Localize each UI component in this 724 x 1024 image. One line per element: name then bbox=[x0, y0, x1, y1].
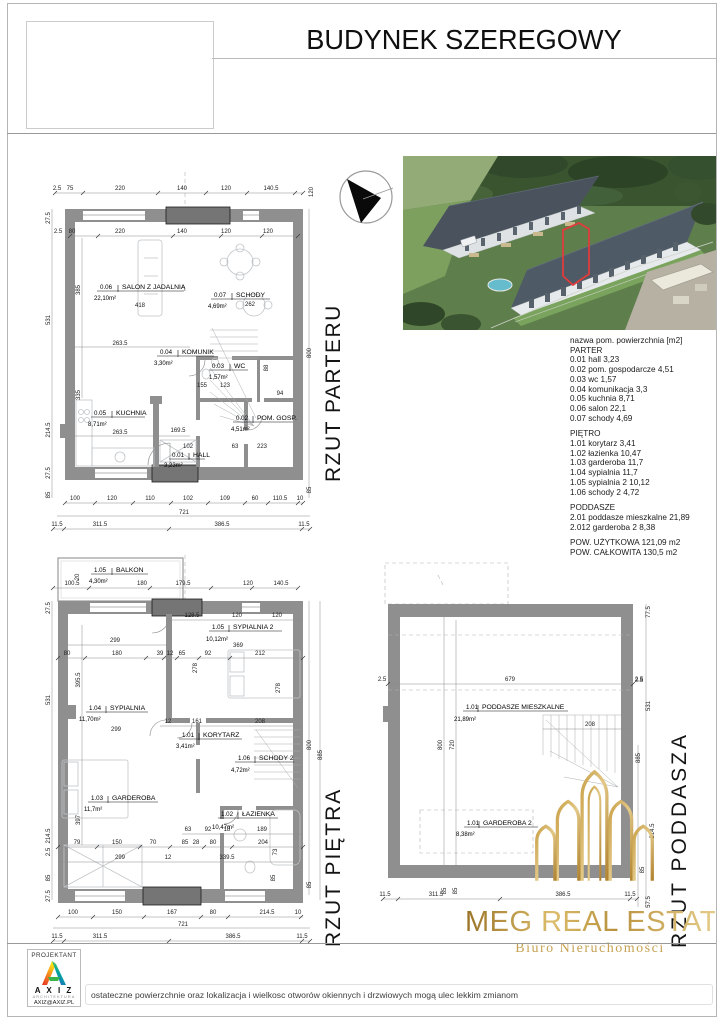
dim-label: 94 bbox=[277, 391, 284, 397]
dim-label: 63 bbox=[185, 827, 192, 833]
dim-label: 102 bbox=[183, 496, 194, 502]
dim-label: 263.5 bbox=[112, 430, 128, 436]
dim-label: 531 bbox=[646, 700, 652, 711]
dim-label: 27.5 bbox=[46, 467, 52, 479]
dim-label: 278 bbox=[276, 682, 282, 693]
room-area: 3,30m² bbox=[154, 361, 173, 367]
room-code: 1.06 bbox=[238, 755, 251, 762]
legend-row: 0.07 schody 4,69 bbox=[570, 414, 720, 424]
dim-label: 335 bbox=[76, 389, 82, 400]
dim-label: 720 bbox=[450, 739, 456, 750]
room-name: HALL bbox=[193, 452, 210, 459]
room-code: 1.04 bbox=[89, 705, 102, 712]
room-name: POM. GOSP. bbox=[257, 415, 297, 422]
dim-label: 299 bbox=[110, 638, 121, 644]
dim-label: 311.5 bbox=[93, 522, 108, 528]
parter-room-labels: 0.06 SALON Z JADALNIĄ 22,10m² 418 0.07 S… bbox=[88, 284, 297, 469]
legend-row: 1.04 sypialnia 11,7 bbox=[570, 468, 720, 478]
legend-section-title: PODDASZE bbox=[570, 503, 720, 513]
dim-label: 800 bbox=[307, 739, 313, 750]
room-code: 1.01 bbox=[467, 820, 480, 827]
room-name: KUCHNIA bbox=[116, 410, 147, 417]
dim-label: 140.5 bbox=[263, 186, 279, 192]
room-code: 0.04 bbox=[160, 349, 173, 356]
dim-label: 220 bbox=[115, 186, 126, 192]
room-code: 1.01 bbox=[466, 704, 479, 711]
dim-label: 77.5 bbox=[646, 606, 652, 618]
area-legend: nazwa pom. powierzchnia [m2] PARTER 0.01… bbox=[570, 336, 720, 558]
parter-walls bbox=[60, 207, 303, 482]
dim-label: 11.5 bbox=[298, 522, 310, 528]
room-area: 21,89m² bbox=[454, 717, 476, 723]
header-bottom-rule bbox=[7, 133, 716, 134]
dim-label: 80 bbox=[210, 840, 217, 846]
room-name: ŁAZIENKA bbox=[242, 811, 275, 818]
room-area: 4,51m² bbox=[231, 427, 250, 433]
dim-label: 100.5 bbox=[64, 581, 80, 587]
pietro-furniture bbox=[62, 650, 300, 887]
room-area: 4,30m² bbox=[89, 579, 108, 585]
dim-label: 92 bbox=[205, 651, 212, 657]
room-area: 11,7m² bbox=[84, 807, 102, 813]
dim-label: 120 bbox=[263, 229, 274, 235]
legend-total: POW. UŻYTKOWA 121,09 m2 bbox=[570, 538, 720, 548]
dim-label: 10 bbox=[297, 496, 304, 502]
dim-label: 102 bbox=[183, 444, 194, 450]
dim-label: 120 bbox=[107, 496, 118, 502]
legend-row: 1.01 korytarz 3,41 bbox=[570, 439, 720, 449]
dim-label: 395.5 bbox=[76, 672, 82, 688]
meg-logo-icon bbox=[512, 748, 677, 893]
dim-label: 180 bbox=[137, 581, 148, 587]
dim-label: 88 bbox=[264, 364, 270, 371]
room-width: 369 bbox=[233, 643, 244, 649]
dim-label: 721 bbox=[178, 922, 189, 928]
dim-label: 386.5 bbox=[214, 522, 230, 528]
dim-label: 386.5 bbox=[225, 934, 241, 940]
dim-label: 85 bbox=[453, 887, 459, 894]
dim-label: 110 bbox=[145, 496, 155, 502]
room-code: 1.05 bbox=[94, 567, 107, 574]
dim-label: 169.5 bbox=[170, 428, 186, 434]
dim-label: 63 bbox=[232, 444, 239, 450]
dim-label: 189 bbox=[257, 827, 268, 833]
legend-section-title: PARTER bbox=[570, 346, 720, 356]
dim-label: 73 bbox=[273, 848, 279, 855]
dim-label: 110.5 bbox=[273, 496, 288, 502]
room-width: 262 bbox=[245, 302, 256, 308]
room-width: 418 bbox=[135, 303, 146, 309]
dim-label: 299 bbox=[115, 855, 126, 861]
dim-label: 800 bbox=[438, 739, 444, 750]
legend-section-title: PIĘTRO bbox=[570, 429, 720, 439]
dim-label: 204 bbox=[258, 840, 269, 846]
dim-label: 721 bbox=[179, 510, 190, 516]
dim-label: 885 bbox=[318, 749, 322, 760]
dim-label: 150 bbox=[112, 840, 123, 846]
dim-label: 140.5 bbox=[273, 581, 289, 587]
dim-label: 161 bbox=[192, 719, 203, 725]
dim-label: 2.5 bbox=[46, 847, 52, 856]
room-name: BALKON bbox=[116, 567, 144, 574]
dim-label: 85 bbox=[46, 491, 52, 498]
legend-row: 0.05 kuchnia 8,71 bbox=[570, 394, 720, 404]
dim-label: 27.5 bbox=[46, 890, 52, 902]
legend-row: 1.05 sypialnia 2 10,12 bbox=[570, 478, 720, 488]
dim-label: 531 bbox=[46, 314, 52, 325]
dim-label: 27.5 bbox=[46, 602, 52, 614]
dim-label: 339.5 bbox=[219, 855, 235, 861]
axiz-name: A X I Z bbox=[28, 986, 80, 995]
north-arrow-icon bbox=[337, 168, 395, 226]
dim-label: 109 bbox=[220, 496, 231, 502]
legend-row: 1.06 schody 2 4,72 bbox=[570, 488, 720, 498]
page-title: BUDYNEK SZEREGOWY bbox=[220, 24, 709, 56]
room-name: KOMUNIK bbox=[182, 349, 214, 356]
dim-label: 214.5 bbox=[259, 910, 275, 916]
room-name: SCHODY 2 bbox=[259, 755, 294, 762]
dim-label: 397 bbox=[76, 814, 82, 825]
dim-label: 179.5 bbox=[175, 581, 191, 587]
legend-row: 2.012 garderoba 2 8,38 bbox=[570, 523, 720, 533]
dim-label: 140 bbox=[177, 229, 188, 235]
dim-label: 140 bbox=[177, 186, 188, 192]
legend-row: 0.04 komunikacja 3,3 bbox=[570, 385, 720, 395]
header-divider bbox=[212, 58, 716, 59]
dim-label: 263.5 bbox=[112, 341, 128, 347]
dim-label: 100 bbox=[68, 910, 79, 916]
room-code: 0.06 bbox=[100, 284, 113, 291]
dim-label: 128.5 bbox=[184, 613, 200, 619]
dim-label: 70 bbox=[150, 840, 157, 846]
room-name: SALON Z JADALNIĄ bbox=[122, 284, 186, 291]
dim-label: 12 bbox=[167, 651, 174, 657]
room-name: SYPIALNIA 2 bbox=[233, 624, 274, 631]
dim-label: 12 bbox=[165, 855, 172, 861]
legend-row: 0.03 wc 1,57 bbox=[570, 375, 720, 385]
dim-label: 85 bbox=[307, 881, 313, 888]
footer-divider bbox=[7, 943, 716, 944]
meg-name: MEG REAL ESTATE bbox=[465, 906, 715, 939]
axiz-logo-icon bbox=[39, 960, 69, 986]
room-code: 1.01 bbox=[182, 732, 195, 739]
legend-row: 0.06 salon 22,1 bbox=[570, 404, 720, 414]
dim-label: 679 bbox=[505, 677, 516, 683]
dim-label: 123 bbox=[220, 383, 231, 389]
dim-label: 85 bbox=[307, 486, 313, 493]
dim-label: 800 bbox=[307, 347, 313, 358]
dim-label: 223 bbox=[257, 444, 268, 450]
dim-label: 208 bbox=[585, 722, 596, 728]
room-area: 1,57m² bbox=[209, 375, 228, 381]
room-name: SYPIALNIA bbox=[110, 705, 146, 712]
dim-label: 167 bbox=[167, 910, 178, 916]
room-code: 0.07 bbox=[214, 292, 227, 299]
axiz-field: ARCHITEKTURA bbox=[28, 995, 80, 999]
dim-label: 120 bbox=[272, 613, 283, 619]
plan-title-parter: RZUT PARTERU bbox=[322, 304, 346, 482]
dim-label: 2.5 bbox=[378, 677, 387, 683]
dim-label: 278 bbox=[193, 662, 199, 673]
legend-row: 1.02 łazienka 10,47 bbox=[570, 449, 720, 459]
dim-label: 220 bbox=[115, 229, 126, 235]
dim-label: 2.5 bbox=[635, 678, 644, 684]
room-code: 0.03 bbox=[212, 363, 225, 370]
room-width: 299 bbox=[111, 727, 122, 733]
projektant-label: PROJEKTANT bbox=[28, 952, 80, 959]
dim-label: 214.5 bbox=[46, 422, 52, 438]
room-code: 1.03 bbox=[91, 795, 104, 802]
legend-row: 2.01 poddasze mieszkalne 21,89 bbox=[570, 513, 720, 523]
dim-label: 155 bbox=[197, 383, 208, 389]
dim-label: 180 bbox=[112, 651, 123, 657]
dim-label: 80 bbox=[64, 651, 71, 657]
dim-label: 10 bbox=[295, 910, 302, 916]
dim-label: 2.5 bbox=[53, 186, 62, 192]
room-code: 1.05 bbox=[212, 624, 225, 631]
dim-label: 214.5 bbox=[46, 828, 52, 844]
footer-disclaimer: ostateczne powierzchnie oraz lokalizacja… bbox=[85, 984, 713, 1005]
room-name: SCHODY bbox=[236, 292, 266, 299]
room-code: 0.02 bbox=[236, 415, 249, 422]
dim-label: 120 bbox=[232, 613, 243, 619]
dim-label: 311.5 bbox=[93, 934, 108, 940]
meg-logo-text: MEG REAL ESTATE Biuro Nieruchomości bbox=[465, 906, 715, 957]
room-area: 3,23m² bbox=[164, 463, 183, 469]
dim-label: 39 bbox=[157, 651, 164, 657]
dim-label: 92 bbox=[205, 827, 212, 833]
room-area: 8,38m² bbox=[456, 832, 475, 838]
dim-label: 75 bbox=[67, 186, 74, 192]
dim-label: 28 bbox=[193, 840, 200, 846]
legend-row: 0.02 pom. gospodarcze 4,51 bbox=[570, 365, 720, 375]
room-name: PODDASZE MIESZKALNE bbox=[482, 704, 565, 711]
legend-header: nazwa pom. powierzchnia [m2] bbox=[570, 336, 720, 346]
room-name: WC bbox=[234, 363, 245, 370]
dim-label: 100 bbox=[70, 496, 81, 502]
plan-title-pietro: RZUT PIĘTRA bbox=[322, 788, 346, 947]
dim-label: 120 bbox=[221, 229, 232, 235]
aerial-photo bbox=[403, 156, 716, 330]
room-area: 3,41m² bbox=[176, 744, 195, 750]
legend-row: 1.03 garderoba 11,7 bbox=[570, 458, 720, 468]
plan-parter-drawing: 2.5 75 220 140 120 140.5 120 2.5 80 220 … bbox=[42, 168, 318, 554]
room-area: 4,72m² bbox=[231, 768, 250, 774]
room-code: 1.02 bbox=[221, 811, 234, 818]
dim-label: 85 bbox=[442, 887, 448, 894]
room-code: 0.01 bbox=[172, 452, 185, 459]
pool bbox=[488, 279, 512, 291]
dim-label: 120 bbox=[221, 186, 232, 192]
dim-label: 85 bbox=[182, 840, 189, 846]
room-area: 10,12m² bbox=[206, 637, 228, 643]
room-area: 10,47m² bbox=[212, 825, 234, 831]
projektant-box: PROJEKTANT A X I Z ARCHITEKTURA AXIZ@AXI… bbox=[27, 949, 81, 1007]
room-area: 8,71m² bbox=[88, 422, 107, 428]
room-area: 22,10m² bbox=[94, 296, 116, 302]
dim-label: 65 bbox=[179, 651, 186, 657]
dim-label: 150 bbox=[112, 910, 123, 916]
title-block-box bbox=[26, 21, 214, 129]
room-code: 0.05 bbox=[94, 410, 107, 417]
dim-label: 80 bbox=[69, 229, 76, 235]
room-name: KORYTARZ bbox=[203, 732, 239, 739]
dim-label: 531 bbox=[46, 694, 52, 705]
room-area: 4,69m² bbox=[208, 304, 227, 310]
dim-label: 80 bbox=[210, 910, 217, 916]
pietro-walls bbox=[58, 558, 303, 905]
plan-pietro-drawing: 100.5 180 179.5 120 140.5 20 128.5 120 1… bbox=[42, 555, 322, 955]
dim-label: 11.5 bbox=[51, 522, 63, 528]
axiz-email: AXIZ@AXIZ.PL bbox=[28, 1000, 80, 1006]
dim-label: 212 bbox=[255, 651, 266, 657]
room-area: 11,70m² bbox=[79, 717, 101, 723]
dim-label: 120 bbox=[309, 186, 315, 197]
room-name: GARDEROBA bbox=[112, 795, 156, 802]
dim-label: 12 bbox=[165, 719, 172, 725]
dim-label: 20 bbox=[75, 573, 81, 580]
dim-label: 60 bbox=[252, 496, 259, 502]
dim-label: 85 bbox=[271, 874, 277, 881]
dim-label: 385 bbox=[76, 284, 82, 295]
dim-label: 11.5 bbox=[296, 934, 308, 940]
dim-label: 11.5 bbox=[51, 934, 63, 940]
dim-label: 27.5 bbox=[46, 212, 52, 224]
dim-label: 120 bbox=[243, 581, 254, 587]
dim-label: 11.5 bbox=[379, 892, 391, 898]
legend-row: 0.01 hall 3,23 bbox=[570, 355, 720, 365]
dim-label: 208 bbox=[255, 719, 266, 725]
dim-label: 2.5 bbox=[54, 229, 63, 235]
dim-label: 79 bbox=[74, 840, 81, 846]
dim-label: 85 bbox=[46, 874, 52, 881]
